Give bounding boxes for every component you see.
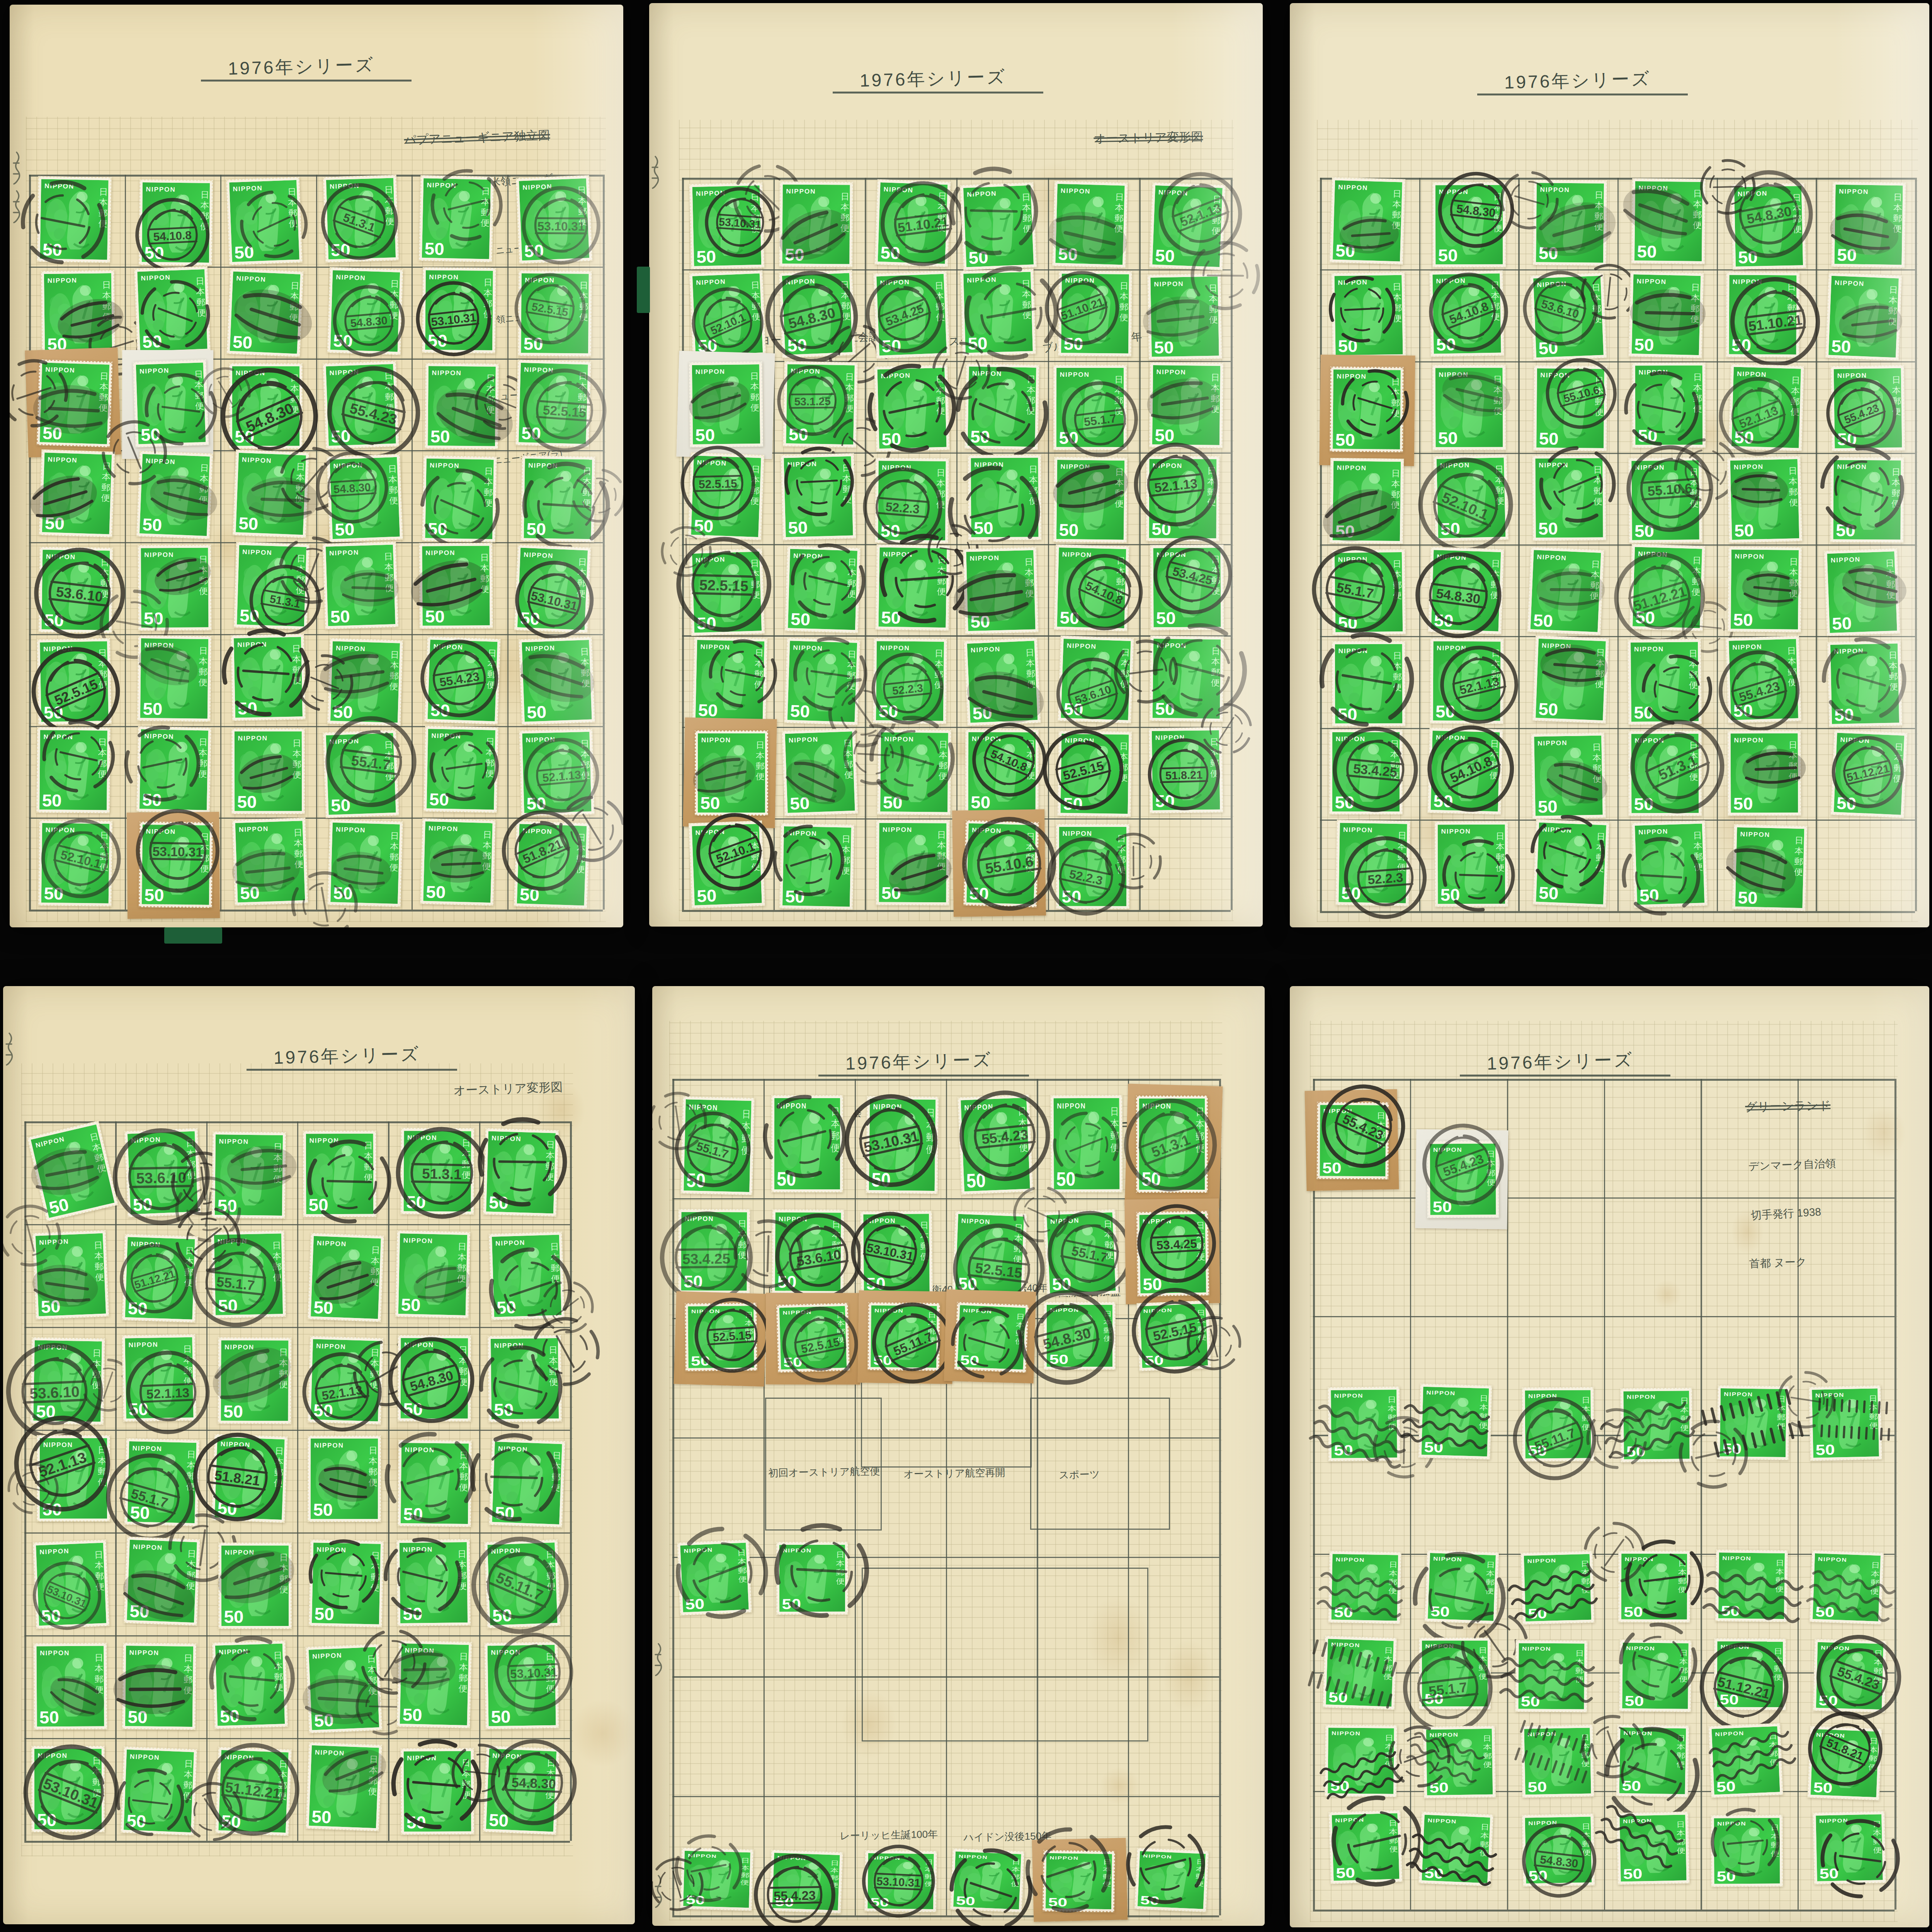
- svg-text:NIPPON: NIPPON: [1154, 281, 1184, 288]
- svg-text:郵: 郵: [1776, 1577, 1784, 1584]
- svg-text:便: 便: [936, 500, 945, 509]
- svg-text:NIPPON: NIPPON: [1734, 737, 1764, 744]
- svg-text:便: 便: [1680, 1423, 1689, 1432]
- postage-stamp-50yen: NIPPON日本郵便50: [964, 363, 1039, 450]
- svg-text:郵: 郵: [579, 302, 588, 312]
- svg-text:NIPPON: NIPPON: [40, 1649, 70, 1657]
- svg-text:NIPPON: NIPPON: [522, 183, 553, 192]
- grid-line-vertical: [865, 178, 866, 910]
- postage-stamp-50yen: NIPPON日本郵便50: [1058, 636, 1134, 723]
- svg-text:50: 50: [331, 426, 351, 446]
- stamp-art: NIPPON日本郵便50: [1138, 1851, 1206, 1909]
- svg-text:本: 本: [98, 748, 107, 758]
- svg-text:郵: 郵: [937, 576, 946, 586]
- svg-text:便: 便: [926, 1144, 935, 1155]
- stamp-art: NIPPON日本郵便50: [774, 1098, 840, 1189]
- postage-stamp-50yen: NIPPON日本郵便50: [124, 1537, 200, 1626]
- svg-text:日: 日: [1889, 650, 1898, 660]
- stamp-art: NIPPON日本郵便50: [39, 730, 107, 810]
- stamp-art: NIPPON日本郵便50: [215, 1644, 285, 1726]
- svg-text:日: 日: [1116, 556, 1125, 566]
- svg-text:NIPPON: NIPPON: [1834, 647, 1864, 655]
- svg-text:NIPPON: NIPPON: [1050, 1217, 1080, 1226]
- postage-stamp-50yen: NIPPON日本郵便50: [33, 1643, 107, 1730]
- svg-text:NIPPON: NIPPON: [1717, 1820, 1746, 1827]
- stamp-art: NIPPON日本郵便50: [219, 1750, 289, 1833]
- svg-text:50: 50: [685, 1595, 704, 1612]
- svg-text:郵: 郵: [1889, 672, 1898, 681]
- svg-text:NIPPON: NIPPON: [46, 827, 75, 834]
- svg-text:NIPPON: NIPPON: [1816, 1731, 1845, 1738]
- svg-text:便: 便: [1119, 313, 1128, 322]
- stamp-art: NIPPON日本郵便50: [486, 1131, 556, 1214]
- svg-text:便: 便: [1594, 222, 1603, 231]
- svg-text:日: 日: [279, 1348, 288, 1357]
- postage-stamp-50yen: NIPPON日本郵便50: [41, 270, 115, 357]
- svg-text:便: 便: [836, 1577, 844, 1585]
- svg-text:郵: 郵: [1873, 1838, 1882, 1845]
- svg-text:50: 50: [1335, 241, 1355, 261]
- svg-text:NIPPON: NIPPON: [972, 370, 1002, 378]
- svg-text:郵: 郵: [830, 1874, 838, 1881]
- postage-stamp-50yen: NIPPON日本郵便50: [484, 1641, 559, 1729]
- postage-stamp-50yen: NIPPON日本郵便50: [134, 266, 211, 354]
- stamp-art: NIPPON日本郵便50: [221, 1340, 289, 1421]
- stamp-art: NIPPON日本郵便50: [1061, 639, 1131, 720]
- svg-text:本: 本: [1117, 845, 1126, 854]
- svg-text:日: 日: [488, 649, 497, 658]
- svg-text:便: 便: [1105, 1250, 1114, 1260]
- svg-text:日: 日: [1871, 1561, 1880, 1569]
- album-page-2: 1976年シリーズオーストリア変形図ヨーロッパ郵便相互会議邦字スタンプブルゲンラ…: [649, 3, 1263, 927]
- svg-text:便: 便: [279, 1380, 288, 1389]
- svg-text:便: 便: [1480, 1849, 1488, 1857]
- postage-stamp-50yen: NIPPON日本郵便50: [867, 1302, 940, 1371]
- svg-text:NIPPON: NIPPON: [1429, 1731, 1459, 1738]
- postage-stamp-50yen: NIPPON日本郵便50: [1631, 178, 1706, 264]
- svg-text:郵: 郵: [546, 1673, 554, 1683]
- svg-text:日: 日: [1676, 1821, 1685, 1828]
- postage-stamp-50yen: NIPPON日本郵便50: [218, 1543, 292, 1629]
- svg-text:便: 便: [1679, 1675, 1688, 1683]
- postage-stamp-50yen: NIPPON日本郵便50: [678, 1209, 750, 1294]
- stamp-art: NIPPON日本郵便50: [953, 1852, 1021, 1910]
- svg-text:郵: 郵: [1389, 1837, 1398, 1844]
- grid-line-vertical: [1895, 1079, 1896, 1910]
- svg-text:NIPPON: NIPPON: [236, 369, 265, 377]
- postage-stamp-50yen: NIPPON日本郵便50: [519, 636, 595, 724]
- svg-text:NIPPON: NIPPON: [1435, 734, 1466, 742]
- svg-text:50: 50: [1527, 1779, 1547, 1795]
- grid-line-vertical: [1219, 1079, 1221, 1915]
- svg-text:便: 便: [582, 498, 591, 508]
- svg-text:郵: 郵: [371, 1572, 379, 1582]
- svg-text:日: 日: [1393, 559, 1401, 569]
- svg-text:本: 本: [486, 748, 495, 757]
- svg-text:日: 日: [583, 466, 592, 476]
- stamp-art: NIPPON日本郵便50: [40, 362, 109, 444]
- postage-stamp-50yen: NIPPON日本郵便50: [423, 726, 498, 813]
- svg-text:日: 日: [187, 1549, 197, 1559]
- svg-text:便: 便: [754, 680, 763, 689]
- postage-stamp-50yen: NIPPON日本郵便50: [1329, 729, 1403, 815]
- svg-text:日: 日: [927, 1107, 935, 1119]
- postage-stamp-50yen: NIPPON日本郵便50: [1137, 1300, 1211, 1371]
- svg-text:便: 便: [483, 309, 492, 319]
- svg-text:便: 便: [545, 1172, 554, 1182]
- svg-text:日: 日: [1483, 1735, 1492, 1742]
- svg-text:日: 日: [187, 1450, 196, 1459]
- svg-text:郵: 郵: [936, 489, 945, 499]
- svg-text:郵: 郵: [581, 760, 590, 769]
- svg-text:日: 日: [1486, 1561, 1495, 1569]
- svg-text:NIPPON: NIPPON: [48, 277, 77, 284]
- svg-text:NIPPON: NIPPON: [144, 551, 174, 558]
- svg-text:便: 便: [847, 681, 856, 690]
- stamp-art: NIPPON日本郵便50: [140, 638, 208, 719]
- svg-text:本: 本: [200, 843, 209, 852]
- stamp-art: NIPPON日本郵便50: [775, 1213, 841, 1291]
- stamp-art: NIPPON日本郵便50: [398, 1233, 468, 1315]
- svg-text:本: 本: [1493, 385, 1502, 395]
- svg-text:50: 50: [403, 1400, 423, 1418]
- svg-text:郵: 郵: [1594, 486, 1602, 495]
- postage-stamp-50yen: NIPPON日本郵便50: [1616, 1812, 1689, 1885]
- svg-text:NIPPON: NIPPON: [133, 1543, 163, 1552]
- svg-text:50: 50: [785, 887, 805, 906]
- svg-text:本: 本: [201, 201, 209, 210]
- svg-text:NIPPON: NIPPON: [1720, 1644, 1749, 1650]
- postage-stamp-50yen: NIPPON日本郵便50: [1726, 272, 1799, 357]
- svg-text:郵: 郵: [837, 1327, 845, 1335]
- stamp-art: NIPPON日本郵便50: [683, 1851, 750, 1908]
- svg-text:50: 50: [1154, 338, 1174, 357]
- svg-text:日: 日: [461, 1758, 470, 1768]
- svg-text:本: 本: [99, 382, 109, 391]
- svg-text:便: 便: [278, 1791, 287, 1801]
- postage-stamp-50yen: NIPPON日本郵便50: [1332, 641, 1406, 727]
- svg-text:郵: 郵: [100, 852, 109, 862]
- svg-text:50: 50: [44, 514, 65, 534]
- svg-text:本: 本: [1693, 841, 1702, 851]
- svg-text:郵: 郵: [1015, 1329, 1024, 1337]
- svg-text:便: 便: [1393, 591, 1402, 600]
- stamp-art: NIPPON日本郵便50: [1332, 732, 1400, 811]
- svg-text:日: 日: [1689, 649, 1697, 658]
- svg-text:郵: 郵: [546, 1779, 555, 1789]
- svg-text:便: 便: [1211, 678, 1220, 687]
- svg-text:日: 日: [92, 1756, 101, 1765]
- postage-stamp-50yen: NIPPON日本郵便50: [397, 1335, 471, 1422]
- svg-text:便: 便: [197, 308, 206, 318]
- svg-text:便: 便: [1891, 499, 1900, 509]
- svg-text:本: 本: [580, 749, 589, 759]
- svg-text:NIPPON: NIPPON: [1441, 828, 1471, 835]
- svg-text:便: 便: [1886, 590, 1896, 600]
- postage-stamp-50yen: NIPPON日本郵便50: [397, 1640, 472, 1728]
- svg-text:便: 便: [1873, 1675, 1882, 1683]
- svg-text:便: 便: [1397, 862, 1406, 872]
- svg-text:日: 日: [1885, 558, 1895, 568]
- svg-text:日: 日: [98, 1446, 107, 1455]
- svg-text:日: 日: [1025, 648, 1034, 657]
- svg-text:郵: 郵: [99, 669, 107, 679]
- svg-text:郵: 郵: [184, 1267, 194, 1277]
- postage-stamp-50yen: NIPPON日本郵便50: [1532, 636, 1609, 724]
- svg-text:郵: 郵: [483, 299, 492, 308]
- svg-text:郵: 郵: [198, 759, 207, 768]
- svg-text:郵: 郵: [1490, 760, 1498, 770]
- svg-text:50: 50: [1438, 429, 1458, 447]
- stamp-art: NIPPON日本郵便50: [1430, 731, 1500, 811]
- svg-text:郵: 郵: [1794, 857, 1803, 866]
- svg-text:50: 50: [1533, 611, 1553, 631]
- svg-text:50: 50: [1059, 428, 1079, 447]
- stamp-art: NIPPON日本郵便50: [1714, 1818, 1780, 1884]
- svg-text:便: 便: [1582, 1423, 1590, 1431]
- svg-text:50: 50: [406, 1813, 426, 1832]
- stamp-art: NIPPON日本郵便50: [1534, 735, 1603, 816]
- svg-text:NIPPON: NIPPON: [495, 1239, 526, 1247]
- svg-text:NIPPON: NIPPON: [1737, 190, 1767, 197]
- postage-stamp-50yen: NIPPON日本郵便50: [31, 1745, 104, 1832]
- postage-stamp-50yen: NIPPON日本郵便50: [212, 1641, 288, 1730]
- svg-text:50: 50: [217, 1498, 238, 1519]
- svg-text:日: 日: [1774, 1648, 1782, 1655]
- svg-text:本: 本: [185, 1257, 194, 1266]
- svg-text:50: 50: [870, 1896, 889, 1909]
- svg-text:郵: 郵: [1391, 398, 1400, 408]
- stamp-art: NIPPON日本郵便50: [696, 640, 764, 721]
- svg-text:本: 本: [751, 203, 760, 213]
- stamp-art: NIPPON日本郵便50: [1338, 823, 1407, 903]
- postage-stamp-50yen: NIPPON日本郵便50: [1629, 544, 1705, 632]
- svg-text:NIPPON: NIPPON: [219, 1648, 249, 1656]
- postage-stamp-50yen: NIPPON日本郵便50: [957, 1095, 1033, 1195]
- stamp-art: NIPPON日本郵便50: [879, 548, 947, 628]
- svg-text:日: 日: [546, 1652, 554, 1662]
- svg-text:便: 便: [1490, 590, 1499, 600]
- svg-text:NIPPON: NIPPON: [312, 1651, 342, 1660]
- svg-text:郵: 郵: [745, 1328, 754, 1335]
- svg-text:便: 便: [184, 1376, 192, 1386]
- svg-text:50: 50: [314, 1711, 334, 1730]
- svg-text:郵: 郵: [750, 393, 759, 402]
- svg-text:50: 50: [1638, 426, 1658, 445]
- svg-text:50: 50: [238, 699, 258, 718]
- svg-text:本: 本: [1393, 570, 1401, 579]
- svg-text:本: 本: [293, 749, 301, 759]
- svg-text:本: 本: [1886, 569, 1895, 578]
- svg-text:本: 本: [1679, 1658, 1688, 1666]
- svg-text:日: 日: [550, 1242, 559, 1252]
- postage-stamp-50yen: NIPPON日本郵便50: [231, 728, 305, 814]
- svg-text:本: 本: [279, 1359, 288, 1368]
- stamp-art: NIPPON日本郵便50: [139, 454, 210, 536]
- svg-text:日: 日: [1103, 1859, 1112, 1866]
- svg-text:NIPPON: NIPPON: [131, 1135, 161, 1144]
- svg-text:郵: 郵: [1385, 1752, 1393, 1759]
- svg-text:NIPPON: NIPPON: [1426, 1389, 1456, 1396]
- svg-text:便: 便: [1019, 1142, 1028, 1153]
- svg-text:NIPPON: NIPPON: [1057, 1102, 1086, 1110]
- svg-text:NIPPON: NIPPON: [696, 556, 726, 564]
- svg-text:本: 本: [1121, 658, 1130, 668]
- stamp-art: NIPPON日本郵便50: [1530, 550, 1601, 633]
- svg-text:日: 日: [1787, 282, 1796, 292]
- postage-stamp-50yen: NIPPON日本郵便50: [1435, 821, 1508, 907]
- postage-stamp-50yen: NIPPON日本郵便50: [877, 729, 951, 815]
- svg-text:NIPPON: NIPPON: [1343, 826, 1373, 834]
- svg-text:便: 便: [924, 1881, 933, 1888]
- postage-stamp-50yen: NIPPON日本郵便50: [1149, 182, 1226, 270]
- svg-text:便: 便: [198, 769, 207, 779]
- svg-text:本: 本: [1480, 1403, 1488, 1412]
- grid-line-vertical: [570, 1121, 572, 1841]
- svg-text:日: 日: [1211, 373, 1220, 383]
- postage-stamp-50yen: NIPPON日本郵便50: [1832, 182, 1906, 268]
- svg-text:NIPPON: NIPPON: [434, 643, 464, 651]
- svg-text:日: 日: [388, 464, 397, 474]
- stamp-art: NIPPON日本郵便50: [519, 179, 589, 261]
- stamp-art: NIPPON日本郵便50: [876, 274, 947, 355]
- stamp-art: NIPPON日本郵便50: [1426, 1729, 1493, 1795]
- postage-stamp-50yen: NIPPON日本郵便50: [327, 638, 403, 726]
- svg-text:便: 便: [102, 312, 111, 321]
- postage-stamp-50yen: NIPPON日本郵便50: [211, 1434, 288, 1523]
- svg-text:50: 50: [789, 794, 810, 813]
- svg-text:郵: 郵: [1197, 1325, 1206, 1333]
- svg-text:郵: 郵: [1119, 302, 1128, 312]
- svg-text:便: 便: [1593, 774, 1602, 784]
- stamp-art: NIPPON日本郵便50: [1055, 184, 1124, 265]
- svg-text:NIPPON: NIPPON: [310, 1136, 339, 1144]
- grid-line-vertical: [220, 175, 221, 910]
- svg-text:50: 50: [1731, 335, 1751, 354]
- svg-text:郵: 郵: [939, 761, 947, 770]
- svg-text:50: 50: [330, 607, 350, 626]
- svg-text:50: 50: [142, 790, 162, 810]
- svg-text:NIPPON: NIPPON: [701, 736, 731, 744]
- stamp-art: NIPPON日本郵便50: [684, 1099, 751, 1192]
- svg-text:本: 本: [1889, 661, 1898, 671]
- svg-text:NIPPON: NIPPON: [1049, 1855, 1079, 1861]
- svg-text:50: 50: [1433, 1198, 1452, 1215]
- svg-text:郵: 郵: [751, 486, 760, 495]
- svg-text:便: 便: [1110, 1142, 1119, 1153]
- svg-text:郵: 郵: [1787, 303, 1796, 313]
- stamp-art: NIPPON日本郵便50: [127, 1540, 197, 1622]
- svg-text:50: 50: [1634, 703, 1653, 722]
- svg-text:NIPPON: NIPPON: [688, 1853, 717, 1859]
- svg-text:本: 本: [199, 657, 208, 667]
- svg-text:NIPPON: NIPPON: [777, 1102, 806, 1110]
- svg-text:日: 日: [1393, 189, 1402, 199]
- svg-text:50: 50: [1528, 1605, 1548, 1622]
- svg-text:NIPPON: NIPPON: [524, 366, 554, 374]
- svg-text:便: 便: [1595, 407, 1604, 417]
- svg-text:NIPPON: NIPPON: [224, 1343, 254, 1351]
- svg-text:50: 50: [1064, 334, 1083, 353]
- svg-text:NIPPON: NIPPON: [498, 1444, 528, 1453]
- svg-text:郵: 郵: [384, 573, 394, 583]
- svg-text:本: 本: [384, 382, 394, 391]
- stamp-art: NIPPON日本郵便50: [40, 641, 109, 722]
- svg-text:郵: 郵: [1690, 488, 1699, 498]
- svg-text:NIPPON: NIPPON: [236, 275, 266, 283]
- svg-text:50: 50: [971, 793, 991, 811]
- postage-stamp-50yen: NIPPON日本郵便50: [1044, 1209, 1119, 1297]
- svg-text:50: 50: [144, 885, 164, 905]
- svg-text:日: 日: [1770, 1824, 1779, 1832]
- svg-text:日: 日: [1391, 469, 1400, 478]
- svg-text:便: 便: [1868, 1763, 1877, 1771]
- postage-stamp-50yen: NIPPON日本郵便50: [1147, 274, 1222, 360]
- svg-text:本: 本: [1690, 478, 1699, 488]
- stamp-art: NIPPON日本郵便50: [40, 1438, 107, 1519]
- svg-text:50: 50: [402, 1705, 422, 1725]
- stamp-art: NIPPON日本郵便50: [1536, 368, 1604, 448]
- svg-text:日: 日: [750, 831, 759, 840]
- svg-text:本: 本: [290, 291, 299, 301]
- postage-stamp-50yen: NIPPON日本郵便50: [772, 1209, 844, 1294]
- svg-text:本: 本: [94, 1251, 103, 1261]
- svg-text:50: 50: [489, 1193, 509, 1213]
- svg-text:便: 便: [461, 1170, 470, 1180]
- stamp-art: NIPPON日本郵便50: [422, 178, 491, 259]
- handwritten-annotation: オーストリア変形図: [1094, 129, 1203, 147]
- svg-text:日: 日: [384, 185, 394, 195]
- svg-text:本: 本: [751, 291, 760, 301]
- svg-text:日: 日: [1869, 1395, 1878, 1403]
- svg-text:本: 本: [583, 477, 592, 486]
- svg-text:NIPPON: NIPPON: [491, 1547, 521, 1555]
- svg-text:日: 日: [546, 1550, 555, 1560]
- svg-text:便: 便: [581, 770, 590, 780]
- svg-text:便: 便: [186, 1481, 195, 1491]
- svg-text:50: 50: [970, 427, 990, 446]
- grid-line-vertical: [1518, 178, 1519, 911]
- svg-text:50: 50: [1140, 1893, 1160, 1908]
- svg-text:50: 50: [1434, 611, 1454, 631]
- svg-text:50: 50: [128, 1708, 147, 1727]
- stamp-art: NIPPON日本郵便50: [957, 1305, 1026, 1369]
- svg-text:郵: 郵: [845, 393, 854, 403]
- svg-text:本: 本: [840, 202, 849, 212]
- handwritten-annotation: 首都 ヌーク: [1749, 1255, 1807, 1271]
- postage-stamp-50yen: NIPPON日本郵便50: [965, 729, 1039, 815]
- svg-text:便: 便: [385, 216, 395, 226]
- svg-text:NIPPON: NIPPON: [407, 1754, 437, 1762]
- svg-text:郵: 郵: [459, 1673, 468, 1683]
- svg-text:本: 本: [1791, 386, 1800, 396]
- svg-text:50: 50: [41, 1606, 61, 1626]
- svg-text:50: 50: [330, 795, 351, 815]
- postage-stamp-50yen: NIPPON日本郵便50: [488, 1335, 562, 1422]
- svg-text:本: 本: [1869, 1403, 1878, 1412]
- stamp-art: NIPPON日本郵便50: [42, 453, 112, 534]
- postage-stamp-50yen: NIPPON日本郵便50: [1134, 1848, 1209, 1912]
- stamp-art: NIPPON日本郵便50: [306, 1134, 374, 1214]
- svg-text:郵: 郵: [841, 855, 850, 865]
- grid-line-vertical: [1717, 178, 1718, 911]
- svg-text:50: 50: [425, 607, 445, 626]
- svg-text:本: 本: [459, 1461, 468, 1471]
- svg-text:本: 本: [1389, 1828, 1398, 1835]
- postage-stamp-50yen: NIPPON日本郵便50: [327, 267, 403, 355]
- postage-stamp-50yen: NIPPON日本郵便50: [1731, 183, 1806, 270]
- svg-text:NIPPON: NIPPON: [782, 1548, 811, 1553]
